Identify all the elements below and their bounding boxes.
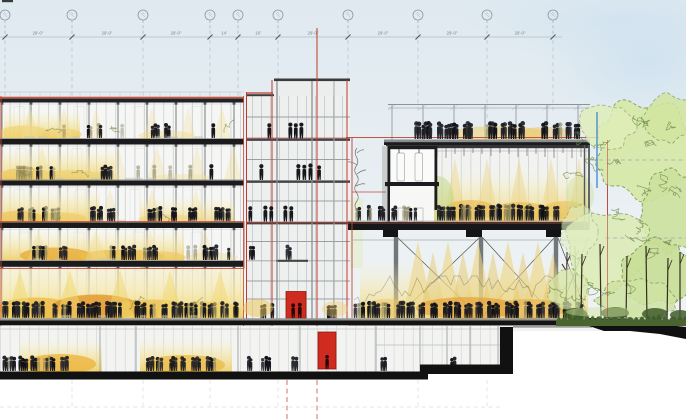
svg-text:29'-0": 29'-0": [171, 31, 182, 36]
svg-text:29'-0": 29'-0": [378, 31, 389, 36]
svg-text:29'-0": 29'-0": [515, 31, 526, 36]
svg-text:29'-0": 29'-0": [102, 31, 113, 36]
svg-text:29'-0": 29'-0": [33, 31, 44, 36]
svg-text:14': 14': [221, 31, 227, 36]
svg-text:16': 16': [255, 31, 261, 36]
svg-text:29'-0": 29'-0": [447, 31, 458, 36]
